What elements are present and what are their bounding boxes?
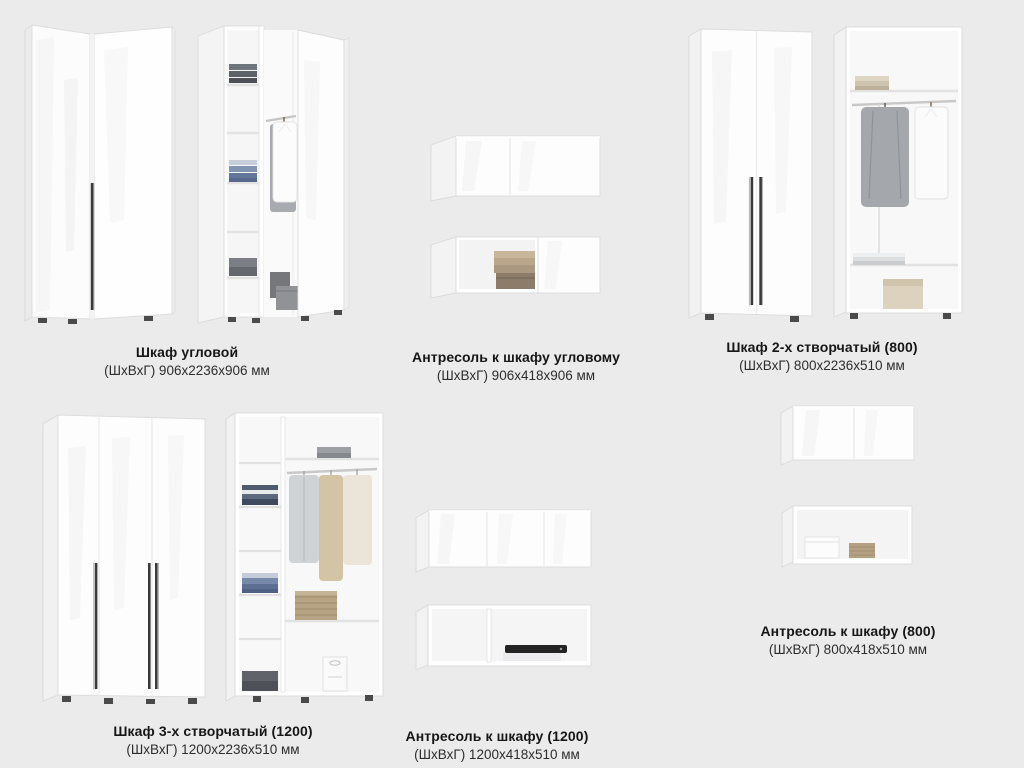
mezzanine-800-open-image	[781, 503, 914, 569]
wardrobe-side	[43, 415, 58, 701]
wardrobe-2-door-open-image	[833, 19, 965, 321]
divider	[487, 609, 491, 662]
product-label-corner-wardrobe: Шкаф угловой (ШхВхГ) 906x2236x906 мм	[17, 344, 357, 379]
product-dimensions: (ШхВхГ) 906x2236x906 мм	[17, 363, 357, 379]
hanging-gray-shirt	[861, 103, 909, 207]
cabinet-side	[781, 406, 793, 465]
wardrobe-2-door-closed-image	[688, 22, 814, 322]
shopping-bag	[323, 657, 347, 691]
product-label-wardrobe-2-door: Шкаф 2-х створчатый (800) (ШхВхГ) 800x22…	[652, 339, 992, 374]
wardrobe-3-door-open-image	[225, 405, 391, 703]
corner-wardrobe-closed-image	[24, 20, 176, 325]
door-handle	[91, 183, 94, 310]
corner-mezzanine-open-image	[430, 233, 602, 301]
folded-clothes-striped	[242, 485, 278, 505]
wardrobe-3-door-closed-image	[42, 408, 207, 704]
folded-item-on-shelf	[317, 447, 351, 458]
hanging-shirt	[270, 117, 297, 212]
product-dimensions: (ШхВхГ) 800x2236x510 мм	[652, 358, 992, 374]
product-dimensions: (ШхВхГ) 800x418x510 мм	[678, 642, 1018, 658]
product-title: Антресоль к шкафу (800)	[678, 623, 1018, 640]
folded-clothes-gray	[229, 258, 257, 276]
cabinet-side	[416, 510, 429, 572]
corner-wardrobe-open-image	[196, 20, 352, 325]
product-label-mezzanine-800: Антресоль к шкафу (800) (ШхВхГ) 800x418x…	[678, 623, 1018, 658]
white-box	[805, 537, 839, 558]
product-title: Шкаф 2-х створчатый (800)	[652, 339, 992, 356]
wardrobe-side	[689, 29, 701, 318]
mezzanine-1200-open-image	[415, 602, 593, 672]
wardrobe-side	[834, 27, 846, 317]
folded-clothes-blue	[242, 573, 278, 593]
cabinet-side	[782, 506, 793, 567]
mezzanine-800-closed-image	[780, 402, 916, 467]
product-title: Антресоль к шкафу (1200)	[327, 728, 667, 745]
folded-clothes-on-shelf	[855, 76, 889, 90]
cabinet-side	[431, 237, 456, 298]
wardrobe-body	[25, 25, 175, 321]
product-dimensions: (ШхВхГ) 1200x418x510 мм	[327, 747, 667, 763]
corner-mezzanine-closed-image	[430, 131, 602, 203]
mezzanine-1200-closed-image	[415, 506, 593, 574]
wardrobe-feet	[62, 696, 197, 704]
product-title: Шкаф угловой	[17, 344, 357, 361]
beige-box	[883, 279, 923, 309]
folded-clothes-dark	[242, 671, 278, 691]
product-label-mezzanine-1200: Антресоль к шкафу (1200) (ШхВхГ) 1200x41…	[327, 728, 667, 763]
product-title: Антресоль к шкафу угловому	[346, 349, 686, 366]
folded-clothes-blue	[229, 160, 257, 182]
hanging-white-shirt	[915, 102, 948, 199]
cabinet-side	[431, 136, 456, 201]
open-door	[298, 30, 349, 317]
wardrobe-side	[226, 413, 235, 701]
folded-clothes-dark	[229, 64, 257, 83]
wicker-basket	[295, 591, 337, 620]
device-box	[503, 645, 567, 661]
folded-blankets	[494, 251, 535, 289]
product-dimensions: (ШхВхГ) 906x418x906 мм	[346, 368, 686, 384]
wicker-basket	[849, 543, 875, 558]
divider	[281, 417, 285, 692]
cabinet-side	[416, 605, 428, 670]
wardrobe-feet	[850, 313, 951, 319]
product-label-corner-mezzanine: Антресоль к шкафу угловому (ШхВхГ) 906x4…	[346, 349, 686, 384]
folded-textile	[853, 253, 905, 265]
